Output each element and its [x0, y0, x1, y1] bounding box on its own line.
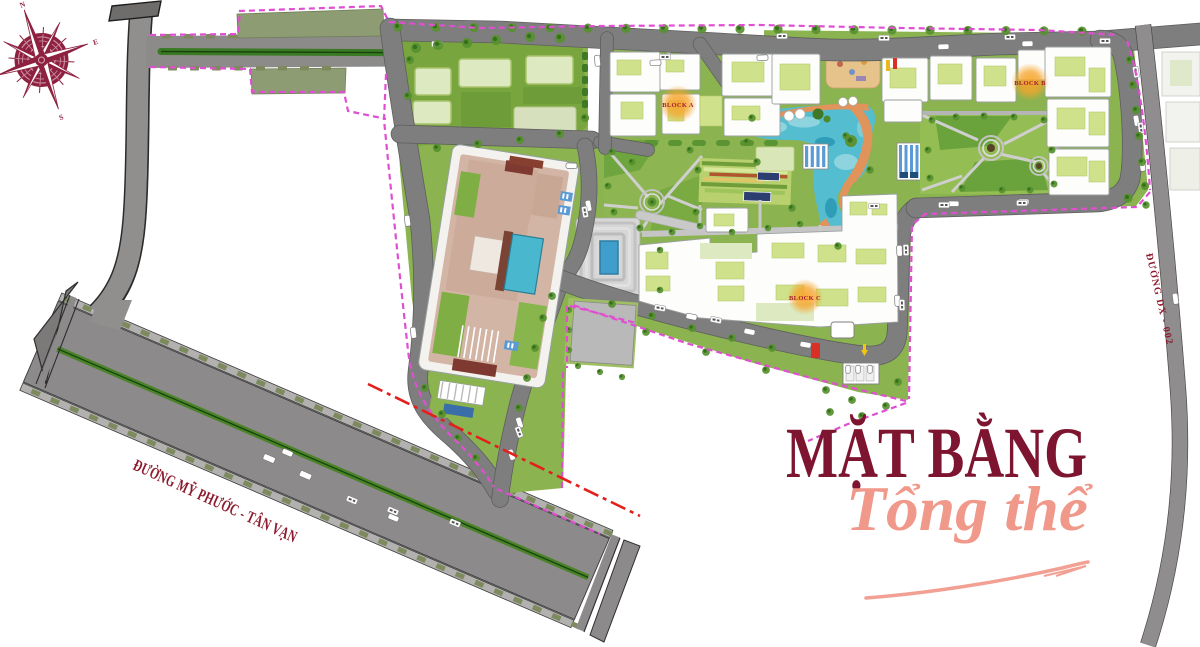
svg-text:BLOCK A: BLOCK A — [662, 102, 694, 109]
svg-text:BLOCK C: BLOCK C — [789, 295, 821, 302]
svg-text:Tổng thể: Tổng thể — [846, 473, 1094, 544]
svg-text:BLOCK B: BLOCK B — [1014, 80, 1046, 87]
